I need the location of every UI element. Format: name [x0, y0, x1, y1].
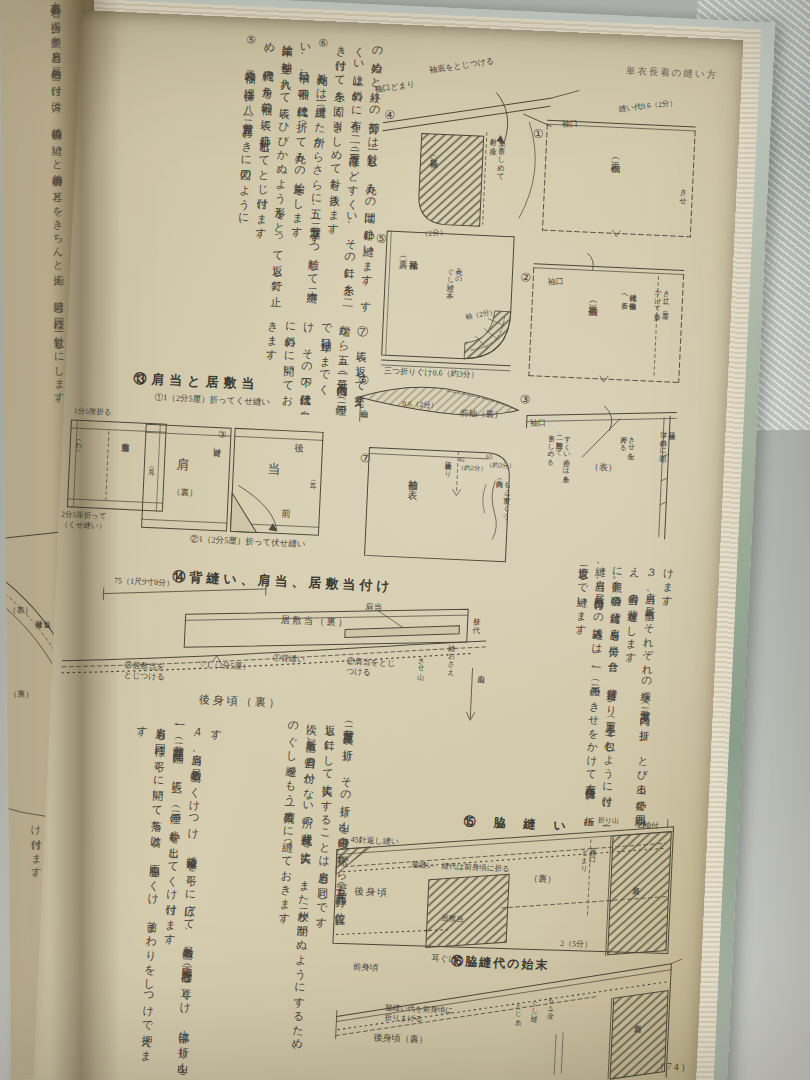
diagram-label: 脇縫い 縫代は前身頃に折る — [411, 860, 510, 874]
diagram-label: ③居敷当を とじつける — [124, 661, 166, 684]
diagram-label: （裏） — [529, 873, 557, 886]
diagram-label: （表） — [8, 606, 32, 617]
diagram-label: 袖（表） — [610, 154, 621, 155]
diagram-label: 丸みの ぐし縫い二本 — [446, 263, 463, 288]
diagram-label: 2分5厘折って （くせ縫い） — [60, 510, 106, 532]
diagram-label: 前袖 （表） — [407, 471, 419, 482]
section-heading-15: ⑮ 脇 縫 い — [463, 814, 569, 834]
diagram-label: 袖口止り 下は斜めに開く — [658, 427, 676, 460]
diagram-label: 縫代は後袖側 へ折る — [620, 289, 637, 306]
diagram-label: 肩 — [176, 457, 190, 474]
diagram-label: 袖口 — [547, 277, 563, 288]
diagram-label: 袖口 — [530, 418, 546, 429]
diagram-label: 脇縫い代を前身頃に 折りまげる — [384, 1003, 453, 1026]
diagram-label: 三つ折りぐけ0.6（約3分） — [384, 366, 479, 381]
diagram-label: 後身頃 — [354, 885, 389, 899]
diagram-label: 肩当 — [365, 601, 382, 613]
diagram-label: ③ — [218, 429, 227, 442]
diagram-label: 2（5分） — [560, 939, 592, 951]
diagram-label: 45 （約2分） — [457, 456, 487, 474]
section-heading-13: ⑬肩当と居敷当 — [133, 371, 260, 394]
diagram-label: （わ） — [74, 436, 82, 444]
diagram-label: （2分） — [420, 227, 447, 239]
diagram-label: きせ一、（二厘） かけて折る — [653, 284, 671, 317]
diagram-label: ⑦ — [360, 451, 371, 467]
diagram-label: 折り代 — [472, 612, 481, 621]
diagram-label: （裏） — [9, 690, 33, 701]
diagram-label: ④ — [384, 108, 395, 124]
diagram-label: 袖口止まり — [443, 457, 452, 473]
diagram-label: 前袖（裏） — [460, 408, 503, 421]
right-page-labels: ④袖底をとじつける袖口どまり糸を引きしめて 針を抜く袖（裏）（2分）①袖口袖（表… — [33, 10, 743, 1080]
diagram-label: 袖付 — [643, 820, 658, 830]
diagram-label: ②1（2分5厘）折って伏せ縫い — [190, 533, 306, 549]
diagram-label: すくい止めは糸を 二、三回巻いて 引きしめる — [545, 430, 571, 479]
diagram-label: 元禄袖 （裏） — [398, 253, 419, 254]
diagram-label: 後身頃（裏） — [199, 692, 284, 710]
diagram-label: 背縫い — [212, 442, 221, 451]
diagram-label: 65 （約3分） — [486, 453, 516, 471]
diagram-label: ③ — [519, 392, 530, 408]
diagram-label: 袖底をとじつける — [429, 56, 495, 76]
diagram-label: ⑤ — [376, 232, 387, 248]
diagram-label: 縫い代0.6（2分） — [618, 98, 677, 114]
diagram-label: 75（1尺9寸8分） — [114, 576, 174, 589]
page-number: （74） — [654, 1059, 693, 1074]
diagram-label: ①背縫い — [273, 653, 306, 665]
diagram-label: 折り山 — [598, 816, 620, 826]
diagram-label: ② — [520, 270, 531, 286]
diagram-label: とじ糸 — [515, 999, 523, 1014]
diagram-label: ▽1（2分5厘） — [198, 660, 250, 673]
diagram-label: ぐし縫い — [531, 995, 539, 1018]
diagram-label: ②肩当をとじ つける — [346, 657, 395, 680]
diagram-label: 後 — [294, 442, 304, 455]
diagram-label: ⑥ — [358, 373, 369, 389]
diagram-label: 絎けおさえ — [446, 639, 455, 671]
diagram-label: 前身頃 — [353, 961, 379, 973]
diagram-label: 居敷当（裏） — [280, 614, 349, 629]
diagram-label: もう一度 — [547, 992, 555, 1007]
diagram-label: 1分5厘折る — [74, 406, 112, 417]
section-heading-16: ⑯脇縫代の始末 — [451, 954, 550, 974]
diagram-label: 居敷当 — [441, 913, 464, 924]
diagram-label: きせ山を 押える — [618, 431, 635, 456]
diagram-label: 袖（2分） — [465, 307, 498, 322]
diagram-label: （裏） — [172, 487, 198, 499]
right-page: 単衣長着の縫い方 — [33, 10, 743, 1080]
diagram-label: 袖（裏） — [587, 297, 598, 298]
diagram-label: 糸を引きしめて 針を抜く — [487, 133, 506, 177]
diagram-label: 引返し 二度縫い — [34, 616, 50, 624]
diagram-label: もう一度すくう （内側） — [494, 475, 512, 516]
diagram-label: （表） — [590, 462, 618, 475]
diagram-label: 0.6（2分） — [402, 399, 438, 410]
diagram-label: 袖口どまり — [374, 79, 416, 95]
diagram-label: きせ — [678, 183, 687, 201]
diagram-label: 前 — [281, 508, 291, 521]
diagram-label: 耳ぐけ — [431, 953, 457, 965]
diagram-label: 身八つ口 どまり — [580, 843, 597, 868]
diagram-label: 袖口 — [562, 119, 579, 130]
diagram-label: 45針返し縫い — [350, 835, 399, 848]
diagram-label: 後身頃（裏） — [373, 1032, 427, 1046]
diagram-label: 当 — [267, 461, 281, 478]
diagram-label: ① — [532, 127, 543, 143]
book-photo: 大裁長着の場合 参照。肩当と居敷当の付け方は、後身頃の縫いと前身頃の耳とをきちん… — [0, 0, 810, 1080]
diagram-label: ①1（2分5厘）折ってくせ縫い — [154, 392, 270, 408]
diagram-label: きせ山 — [417, 652, 426, 668]
section-heading-14: ⑭背縫い、肩当、居敷当付け — [172, 569, 394, 596]
